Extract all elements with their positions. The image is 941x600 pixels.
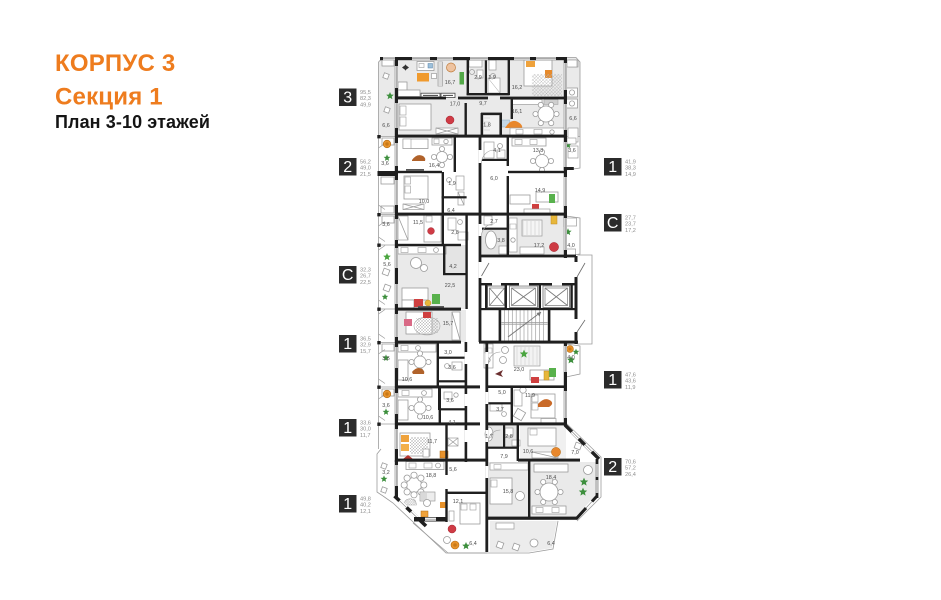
svg-text:49,8: 49,8: [360, 496, 371, 502]
svg-text:14,9: 14,9: [625, 172, 636, 178]
svg-text:16,2: 16,2: [512, 85, 523, 91]
svg-text:40,2: 40,2: [360, 503, 371, 509]
svg-text:3: 3: [343, 90, 352, 107]
svg-text:3,6: 3,6: [382, 356, 390, 362]
svg-text:16,4: 16,4: [429, 163, 440, 169]
svg-text:6,6: 6,6: [569, 116, 577, 122]
svg-text:5,6: 5,6: [383, 262, 391, 268]
svg-text:2,8: 2,8: [451, 230, 459, 236]
svg-text:4,2: 4,2: [449, 264, 457, 270]
svg-text:1: 1: [343, 420, 352, 437]
svg-text:6,4: 6,4: [469, 541, 477, 547]
svg-text:2,7: 2,7: [490, 219, 498, 225]
svg-text:7,9: 7,9: [500, 454, 508, 460]
svg-text:32,9: 32,9: [360, 343, 371, 349]
svg-text:22,5: 22,5: [445, 283, 456, 289]
svg-text:47,6: 47,6: [625, 372, 636, 378]
svg-text:13,3: 13,3: [533, 148, 544, 154]
svg-text:10,0: 10,0: [419, 199, 430, 205]
svg-text:17,0: 17,0: [450, 102, 461, 108]
svg-text:15,7: 15,7: [360, 349, 371, 355]
svg-text:1: 1: [343, 336, 352, 353]
svg-text:36,5: 36,5: [360, 336, 371, 342]
svg-text:4,0: 4,0: [567, 243, 575, 249]
svg-text:17,2: 17,2: [625, 228, 636, 234]
svg-text:38,3: 38,3: [625, 166, 636, 172]
svg-text:23,0: 23,0: [514, 367, 525, 373]
svg-text:9,7: 9,7: [479, 101, 487, 107]
svg-text:11,7: 11,7: [427, 439, 437, 445]
svg-text:18,4: 18,4: [546, 475, 557, 481]
svg-text:1,7: 1,7: [485, 434, 493, 440]
svg-text:2,9: 2,9: [474, 75, 482, 81]
svg-text:10,6: 10,6: [402, 377, 413, 383]
svg-text:11,5: 11,5: [413, 220, 423, 226]
svg-text:26,4: 26,4: [625, 472, 636, 478]
svg-text:23,7: 23,7: [625, 222, 636, 228]
svg-text:32,3: 32,3: [360, 267, 371, 273]
svg-text:70,6: 70,6: [625, 459, 636, 465]
svg-text:15,7: 15,7: [443, 321, 454, 327]
svg-text:3,6: 3,6: [446, 398, 454, 404]
svg-text:41,9: 41,9: [625, 159, 636, 165]
svg-text:11,9: 11,9: [525, 393, 535, 399]
svg-text:27,7: 27,7: [625, 215, 636, 221]
svg-text:33,6: 33,6: [360, 420, 371, 426]
svg-text:1,9: 1,9: [488, 75, 496, 81]
svg-text:2,8: 2,8: [505, 434, 513, 440]
svg-text:3,8: 3,8: [497, 238, 505, 244]
svg-text:4,1: 4,1: [493, 148, 501, 154]
svg-text:Секция 1: Секция 1: [55, 84, 163, 111]
svg-text:КОРПУС 3: КОРПУС 3: [55, 50, 175, 77]
svg-text:16,7: 16,7: [445, 80, 456, 86]
svg-text:82,3: 82,3: [360, 96, 371, 102]
svg-text:11,9: 11,9: [625, 385, 635, 391]
svg-text:10,6: 10,6: [423, 415, 434, 421]
svg-text:1: 1: [343, 496, 352, 513]
svg-text:4,0: 4,0: [567, 355, 575, 361]
svg-text:95,5: 95,5: [360, 90, 371, 96]
svg-text:План 3-10 этажей: План 3-10 этажей: [55, 112, 210, 132]
svg-text:С: С: [342, 267, 354, 284]
svg-text:10,6: 10,6: [523, 449, 534, 455]
svg-text:14,9: 14,9: [535, 188, 546, 194]
svg-text:4,1: 4,1: [448, 420, 456, 426]
svg-text:3,7: 3,7: [496, 407, 504, 413]
svg-text:6,4: 6,4: [447, 208, 455, 214]
svg-text:49,0: 49,0: [360, 166, 371, 172]
svg-text:21,5: 21,5: [360, 172, 371, 178]
svg-text:15,8: 15,8: [503, 489, 514, 495]
svg-text:18,8: 18,8: [426, 473, 437, 479]
svg-text:1: 1: [608, 372, 617, 389]
svg-text:2: 2: [608, 459, 617, 476]
svg-text:1,8: 1,8: [483, 123, 491, 129]
svg-text:43,6: 43,6: [625, 379, 636, 385]
svg-text:1: 1: [608, 159, 617, 176]
svg-text:6,0: 6,0: [490, 176, 498, 182]
svg-text:3,6: 3,6: [381, 161, 389, 167]
svg-text:57,2: 57,2: [625, 466, 636, 472]
svg-text:56,2: 56,2: [360, 159, 371, 165]
svg-text:1,9: 1,9: [448, 181, 456, 187]
svg-text:2: 2: [343, 159, 352, 176]
svg-text:3,6: 3,6: [382, 403, 390, 409]
svg-text:3,0: 3,0: [444, 350, 452, 356]
svg-text:30,0: 30,0: [360, 427, 371, 433]
svg-text:С: С: [607, 215, 619, 232]
svg-text:6,6: 6,6: [382, 123, 390, 129]
svg-text:26,7: 26,7: [360, 274, 371, 280]
svg-text:3,6: 3,6: [568, 148, 576, 154]
svg-text:12,1: 12,1: [360, 509, 371, 515]
svg-text:22,5: 22,5: [360, 280, 371, 286]
svg-text:6,4: 6,4: [547, 541, 555, 547]
svg-text:11,7: 11,7: [360, 433, 370, 439]
svg-text:3,6: 3,6: [448, 365, 456, 371]
svg-text:7,0: 7,0: [571, 450, 579, 456]
svg-text:17,2: 17,2: [534, 243, 545, 249]
svg-text:49,9: 49,9: [360, 102, 371, 108]
svg-text:3,2: 3,2: [382, 470, 390, 476]
svg-text:3,6: 3,6: [382, 222, 390, 228]
svg-text:12,1: 12,1: [453, 499, 464, 505]
svg-text:5,0: 5,0: [498, 390, 506, 396]
svg-text:5,6: 5,6: [449, 467, 457, 473]
svg-text:16,1: 16,1: [512, 109, 523, 115]
